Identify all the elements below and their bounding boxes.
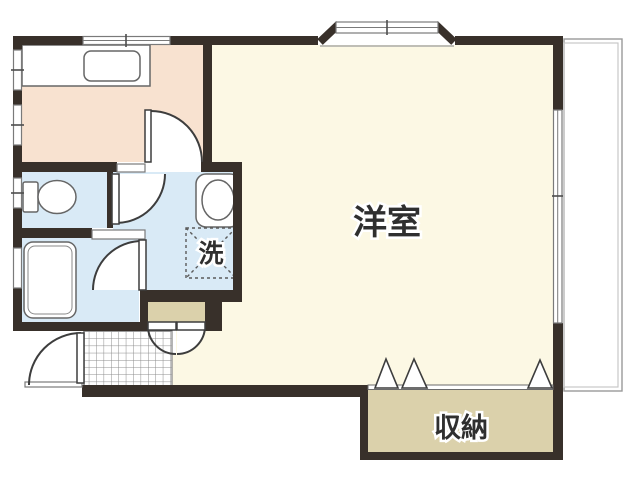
floor-plan: 洗 [0, 0, 640, 480]
laundry-label: 洗 [198, 240, 223, 268]
kitchen-top-window [83, 34, 170, 47]
balcony [564, 39, 622, 391]
toilet [23, 181, 76, 214]
kitchen-sink [84, 51, 140, 81]
kitchen-left-window-1 [11, 50, 24, 90]
hall-closet-floor [148, 302, 205, 322]
kitchen-left-window-2 [11, 105, 24, 145]
floor-plan-page: 洗 [0, 0, 640, 480]
storage-label: 収納 [434, 412, 488, 443]
entrance-tile [84, 331, 172, 386]
western-room-label: 洋室 [353, 203, 421, 242]
balcony-sliding-window [552, 110, 563, 323]
bathroom-window [14, 248, 22, 288]
toilet-window [11, 178, 24, 208]
bay-window [320, 20, 454, 46]
bathtub [24, 242, 76, 318]
